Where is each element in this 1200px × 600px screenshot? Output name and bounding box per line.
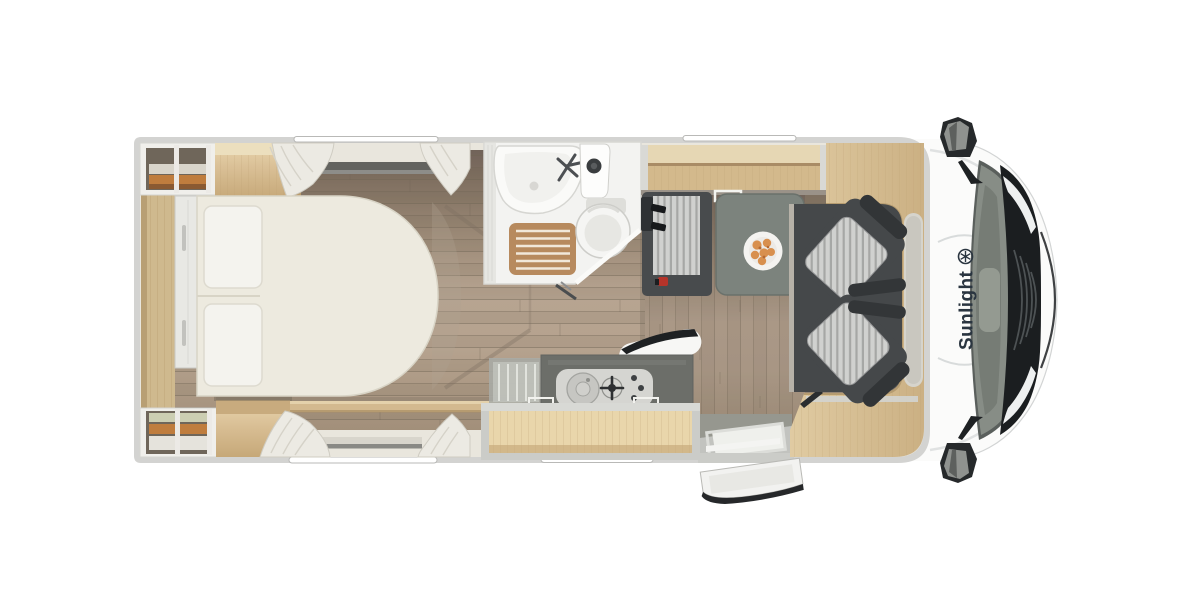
svg-text:Sunlight: Sunlight bbox=[957, 271, 978, 350]
